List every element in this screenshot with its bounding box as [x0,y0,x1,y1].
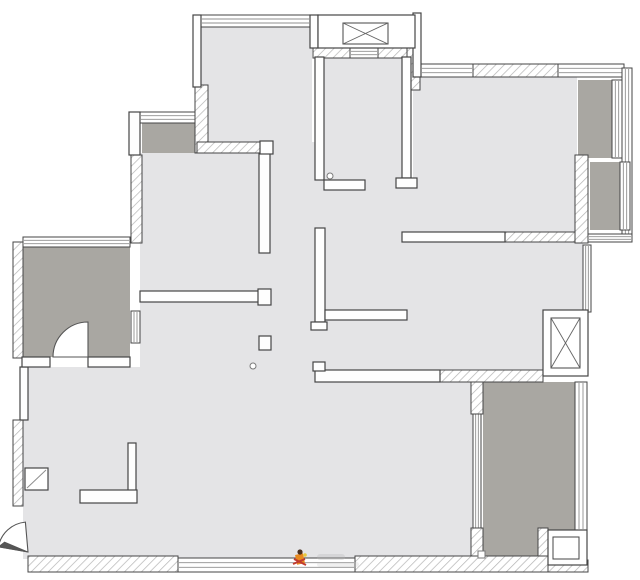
window-frame [588,234,632,242]
elevator-lobby-floor [323,57,403,190]
hatched-wall [13,242,23,358]
window-frame [140,112,197,123]
watermark-text-blob [317,554,345,560]
elevator-shaft-right [543,310,588,376]
window-frame [558,64,624,77]
wall-segment [324,180,365,190]
window-band [140,112,197,123]
wall-segment [313,362,325,371]
center-area-floor [323,187,415,370]
right-closet-strip-floor [578,80,612,158]
wall-segment [140,291,260,302]
watermark-head [297,549,302,554]
hatched-wall [575,155,588,243]
left-bedroom-floor [140,153,271,292]
marker-square-icon [478,551,485,558]
left-bay-window-floor [142,122,195,153]
window-band [588,234,632,242]
wall-segment [315,57,324,180]
window-frame [23,237,130,247]
wall-segment [80,490,137,503]
window-frame [473,411,481,530]
wall-segment [20,367,28,420]
wall-segment [128,443,136,491]
right-platform-floor [590,162,620,230]
wall-segment [259,336,271,350]
wall-segment [311,322,327,330]
window-band [201,15,310,27]
wall-segment [402,57,411,178]
window-band [473,411,481,530]
hatched-wall [473,64,558,77]
wall-segment [22,357,50,367]
floor-plan-drawing [0,0,640,580]
watermark-text-blob [317,562,359,567]
wall-segment [315,228,325,322]
wall-segment [325,310,407,320]
wall-segment [402,232,505,242]
window-band [612,80,622,158]
floor-plan [0,0,640,580]
living-dining-floor [23,367,475,559]
bathroom-floor [140,302,271,368]
window-band [23,237,130,247]
marker-circle-icon [250,363,256,369]
wall-segment [88,357,130,367]
wall-segment [310,15,318,48]
wall-segment [260,141,273,154]
wall-segment [315,370,440,382]
window-frame [131,311,140,343]
window-frame [421,64,473,77]
window-band [558,64,624,77]
window-band [575,382,587,530]
watermark-dot [303,553,307,557]
window-band [583,245,591,312]
window-band [421,64,473,77]
hatched-wall [471,382,483,414]
hatched-wall [28,556,178,572]
entry-door [0,522,28,552]
window-band [620,162,630,230]
ac-platform [548,530,587,565]
entry-cabinet [25,468,48,490]
hatched-wall [355,556,548,572]
window-frame [620,162,630,230]
window-frame [201,15,310,27]
window-frame [612,80,622,158]
top-right-bedroom-floor [413,77,577,234]
hatched-wall [503,232,575,242]
wall-segment [259,153,270,253]
hatched-wall [440,370,543,382]
hatched-wall [13,420,23,506]
ac-platform-inner [553,537,579,559]
window-frame [583,245,591,312]
hatched-wall [131,155,142,243]
elevator-shaft-top [318,15,415,48]
window-frame [350,48,378,58]
window-band [131,311,140,343]
wall-segment [258,289,271,305]
window-band [350,48,378,58]
wall-segment [193,15,201,87]
window-frame [575,382,587,530]
top-left-bedroom-floor [200,25,312,143]
hatched-wall [197,142,262,153]
marker-circle-icon [327,173,333,179]
wall-segment [129,112,140,155]
wall-segment [396,178,417,188]
